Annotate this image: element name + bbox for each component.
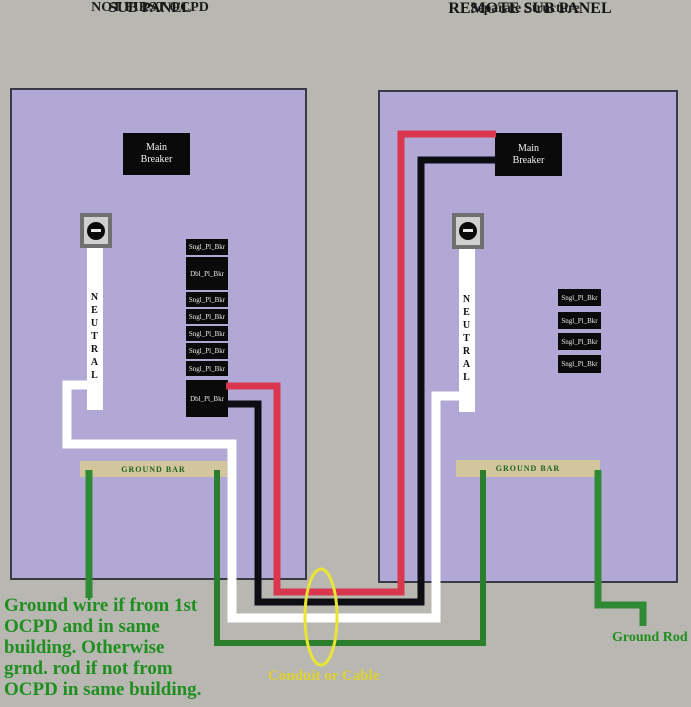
ground-note-line: grnd. rod if not from [4, 658, 201, 679]
lug-screw-icon [87, 222, 105, 240]
right-main-breaker-label: Main Breaker [504, 143, 554, 167]
breaker-double-pole: Dbl_Pl_Bkr [186, 257, 228, 290]
left-panel-subtitle: NOT FIRST OCPD [0, 0, 300, 16]
breaker-single-pole: Sngl_Pl_Bkr [558, 312, 601, 329]
conduit-label: Conduit or Cable [268, 668, 379, 685]
breaker-single-pole: Sngl_Pl_Bkr [186, 343, 228, 359]
right-panel-subtitle: Separate Structure [380, 0, 670, 16]
ground-note-line: OCPD in same building. [4, 679, 201, 700]
left-main-breaker-label: Main Breaker [132, 142, 182, 166]
ground-rod-label: Ground Rod [612, 630, 688, 646]
ground-note-line: OCPD and in same [4, 616, 201, 637]
left-main-breaker: Main Breaker [123, 133, 190, 175]
breaker-double-pole-feed: Dbl_Pl_Bkr [186, 380, 228, 417]
wiring-diagram: SUB PANEL NOT FIRST OCPD REMOTE SUB PANE… [0, 0, 691, 707]
right-ground-bar: GROUND BAR [456, 460, 600, 477]
lug-screw-icon [459, 222, 477, 240]
left-neutral-label: NEUTRAL [89, 292, 100, 383]
ground-note: Ground wire if from 1st OCPD and in same… [4, 595, 201, 700]
ground-note-line: Ground wire if from 1st [4, 595, 201, 616]
breaker-single-pole: Sngl_Pl_Bkr [186, 239, 228, 255]
breaker-single-pole: Sngl_Pl_Bkr [186, 309, 228, 324]
right-main-breaker: Main Breaker [495, 133, 562, 176]
breaker-single-pole: Sngl_Pl_Bkr [558, 289, 601, 306]
left-neutral-lug [80, 213, 112, 248]
breaker-single-pole: Sngl_Pl_Bkr [186, 326, 228, 341]
left-ground-bar: GROUND BAR [80, 461, 227, 477]
right-ground-bar-label: GROUND BAR [496, 464, 560, 473]
right-neutral-label: NEUTRAL [461, 294, 472, 385]
breaker-single-pole: Sngl_Pl_Bkr [186, 361, 228, 376]
breaker-single-pole: Sngl_Pl_Bkr [558, 333, 601, 350]
breaker-single-pole: Sngl_Pl_Bkr [186, 292, 228, 307]
left-ground-bar-label: GROUND BAR [121, 465, 185, 474]
conduit-ellipse [305, 569, 337, 665]
ground-note-line: building. Otherwise [4, 637, 201, 658]
breaker-single-pole: Sngl_Pl_Bkr [558, 355, 601, 373]
right-neutral-lug [452, 213, 484, 249]
